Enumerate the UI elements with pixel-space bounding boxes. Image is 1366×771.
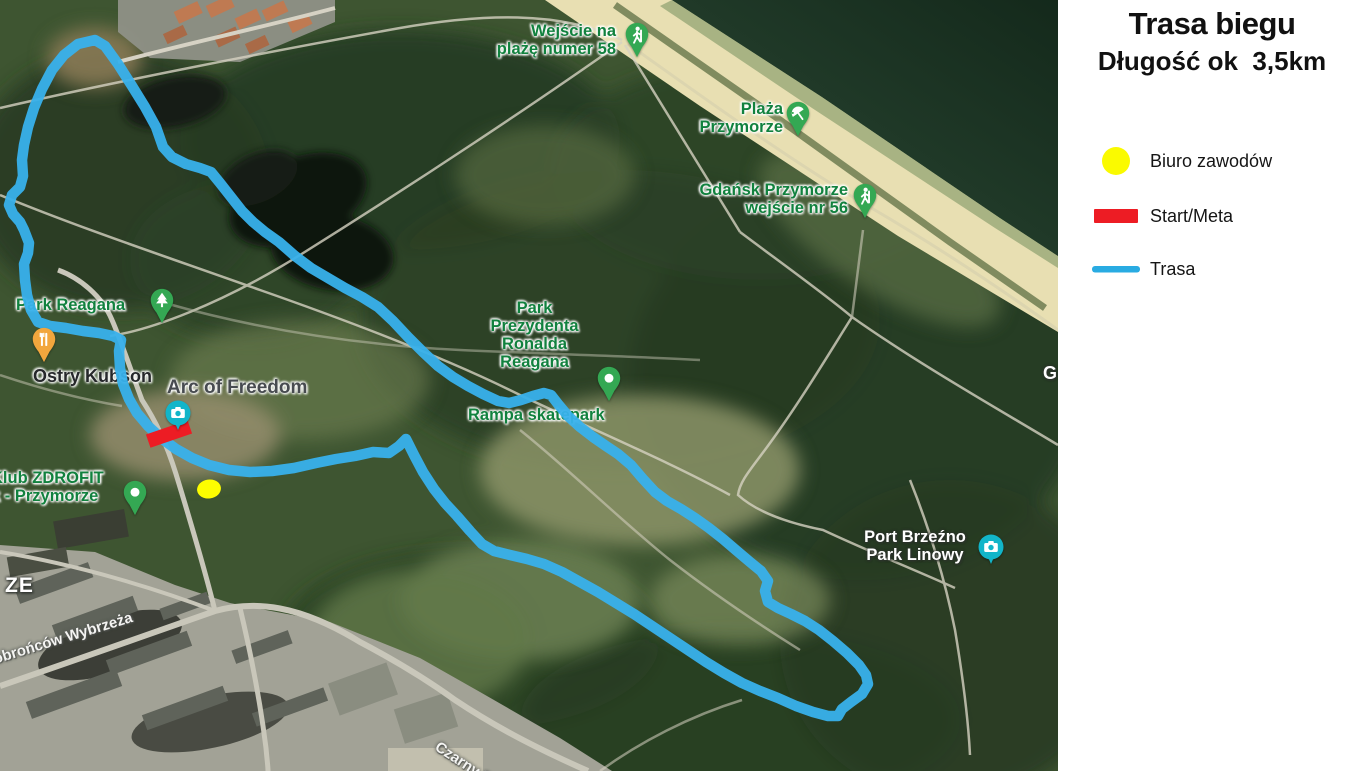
legend-label-race-office: Biuro zawodów bbox=[1150, 151, 1272, 172]
start-meta-swatch bbox=[1090, 208, 1142, 224]
red-bar-icon bbox=[1094, 209, 1138, 223]
legend-label-start-meta: Start/Meta bbox=[1150, 206, 1233, 227]
route-swatch bbox=[1090, 264, 1142, 274]
legend-panel: Trasa biegu Długość ok 3,5km Biuro zawod… bbox=[1058, 0, 1366, 771]
dot-icon bbox=[605, 374, 614, 383]
dot-icon bbox=[131, 488, 140, 497]
blue-line-icon bbox=[1092, 266, 1140, 273]
legend-item-start-meta: Start/Meta bbox=[1058, 199, 1366, 233]
page-subtitle: Długość ok 3,5km bbox=[1058, 46, 1366, 77]
park-reagana-pin[interactable] bbox=[149, 288, 175, 324]
screenshot-root: Wejście na plażę numer 58 Plaża Przymorz… bbox=[0, 0, 1366, 771]
legend-item-route: Trasa bbox=[1058, 252, 1366, 286]
legend-label-route: Trasa bbox=[1150, 259, 1195, 280]
race-office-swatch bbox=[1090, 145, 1142, 177]
ostry-kubson-pin[interactable] bbox=[31, 327, 57, 363]
arc-of-freedom-camera-poi[interactable] bbox=[164, 399, 192, 432]
race-office-marker[interactable] bbox=[196, 478, 222, 500]
beach-entrance-58-pin[interactable] bbox=[624, 22, 650, 58]
map-canvas[interactable]: Wejście na plażę numer 58 Plaża Przymorz… bbox=[0, 0, 1058, 771]
klub-zdrofit-pin[interactable] bbox=[122, 480, 148, 516]
legend-item-race-office: Biuro zawodów bbox=[1058, 144, 1366, 178]
route-overlay bbox=[0, 0, 1058, 771]
page-title: Trasa biegu bbox=[1058, 6, 1366, 42]
park-prezydenta-pin[interactable] bbox=[596, 366, 622, 402]
yellow-dot-icon bbox=[1102, 147, 1130, 175]
route-path[interactable] bbox=[9, 40, 868, 716]
port-brzezno-camera-poi[interactable] bbox=[977, 533, 1005, 566]
entrance-56-pin[interactable] bbox=[852, 183, 878, 219]
plaza-przymorze-pin[interactable] bbox=[785, 101, 811, 137]
